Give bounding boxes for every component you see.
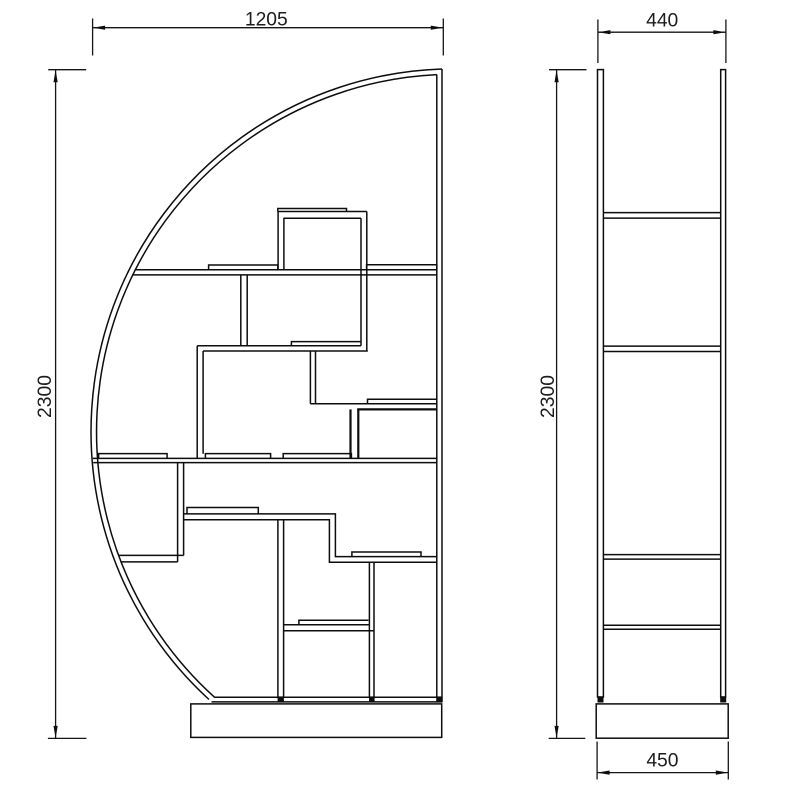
svg-text:2300: 2300 — [35, 375, 56, 418]
svg-text:450: 450 — [646, 751, 678, 772]
svg-text:1205: 1205 — [245, 9, 288, 30]
svg-text:440: 440 — [646, 11, 678, 32]
svg-text:2300: 2300 — [538, 375, 559, 418]
